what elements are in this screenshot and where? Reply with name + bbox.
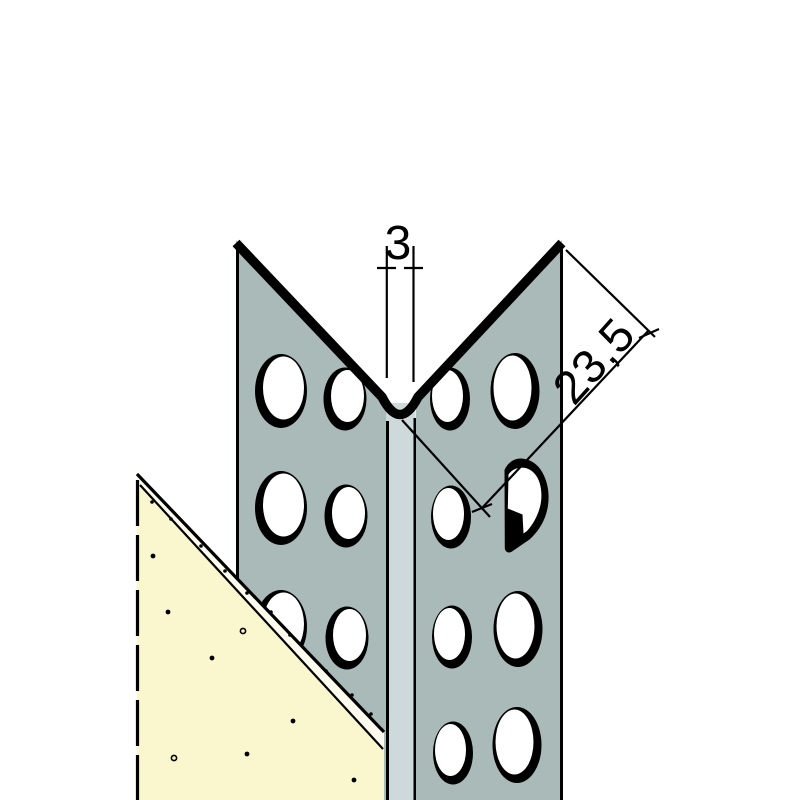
hole-face — [263, 357, 304, 420]
perforation-hole — [255, 354, 307, 428]
hole-face — [496, 710, 534, 775]
hole-face — [494, 356, 532, 421]
speck — [150, 500, 154, 504]
hole-face — [433, 488, 464, 540]
perforation-hole — [325, 485, 368, 548]
corner-nose-strip — [386, 403, 416, 800]
speck — [269, 610, 273, 614]
technical-drawing-canvas: 3 23,5 — [0, 0, 800, 800]
dimension-label-3: 3 — [385, 217, 412, 270]
speck — [199, 544, 203, 548]
corner-profile-drawing: 3 23,5 — [0, 0, 800, 800]
perforation-hole — [494, 591, 543, 667]
speck — [324, 669, 328, 673]
hole-face — [434, 608, 465, 660]
hole-face — [497, 594, 535, 659]
perforation-hole — [433, 722, 473, 785]
stipple-dot — [166, 610, 171, 615]
stipple-dot — [352, 778, 357, 783]
perforation-hole — [326, 607, 369, 670]
hole-face — [263, 474, 304, 537]
speck — [169, 517, 173, 521]
perforation-hole — [491, 353, 540, 429]
perforation-hole — [432, 606, 472, 669]
speck — [223, 569, 227, 573]
stipple-dot — [245, 752, 250, 757]
nose-strip-face — [386, 403, 416, 800]
hole-face — [435, 724, 466, 776]
speck — [245, 591, 249, 595]
hole-face — [332, 487, 365, 539]
stipple-dot — [151, 554, 156, 559]
hole-face — [333, 609, 366, 661]
perforation-hole — [493, 707, 542, 783]
stipple-dot — [210, 656, 215, 661]
perforation-hole — [431, 486, 471, 549]
speck — [350, 693, 354, 697]
speck — [369, 712, 373, 716]
perforation-hole — [255, 471, 307, 545]
speck — [288, 633, 292, 637]
stipple-dot — [291, 719, 296, 724]
